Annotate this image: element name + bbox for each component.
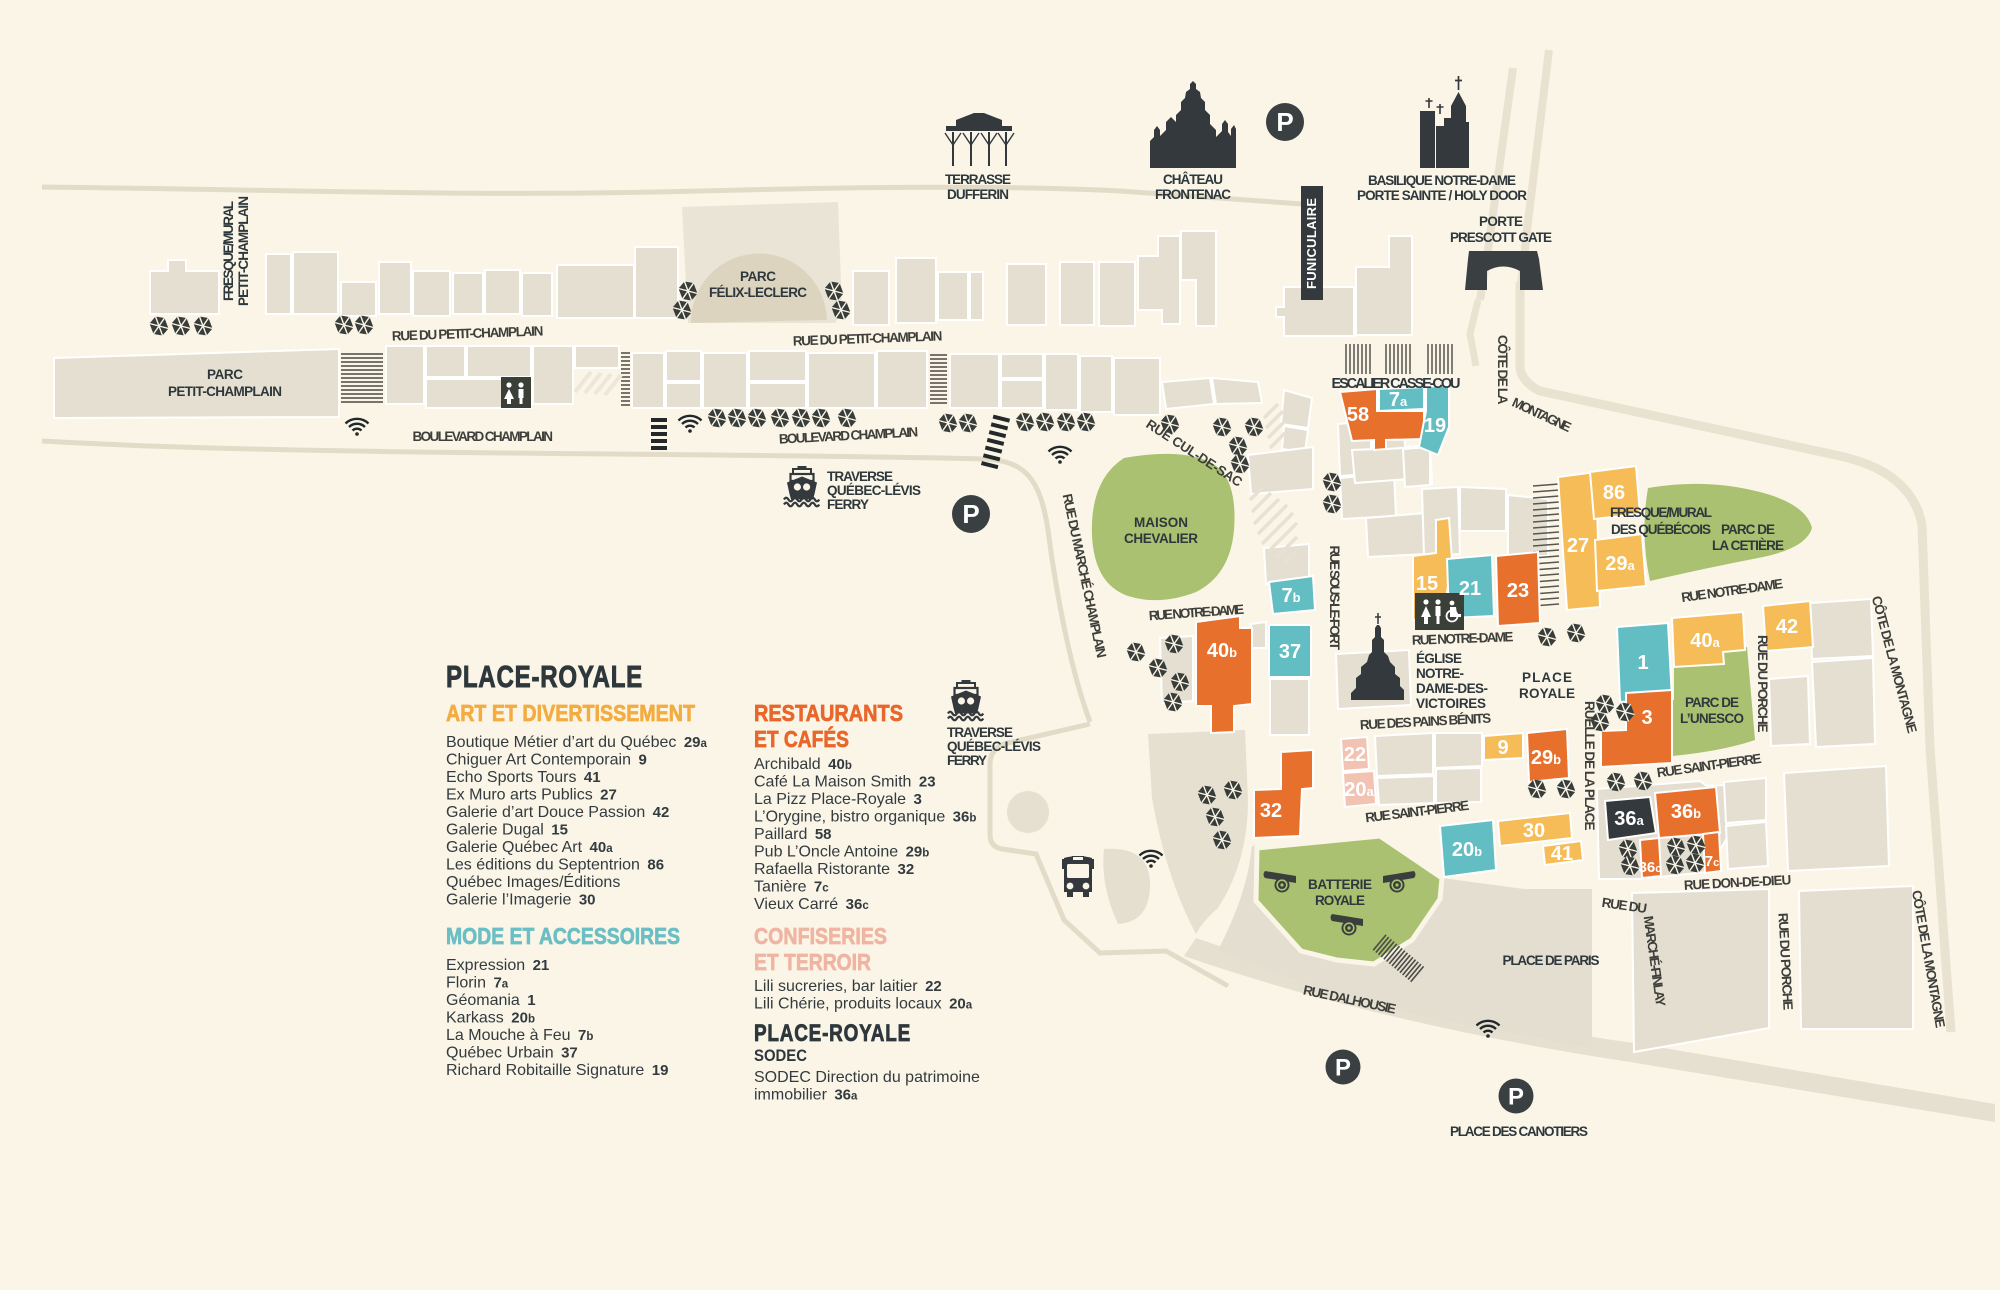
svg-text:Géomania 1: Géomania 1 [446,992,536,1009]
svg-text:PETIT-CHAMPLAIN: PETIT-CHAMPLAIN [236,196,251,306]
svg-text:ET CAFÉS: ET CAFÉS [754,725,849,752]
svg-text:Archibald 40b: Archibald 40b [754,756,852,773]
svg-text:PLACE DES CANOTIERS: PLACE DES CANOTIERS [1450,1124,1588,1139]
svg-text:Vieux Carré 36c: Vieux Carré 36c [754,896,869,913]
svg-text:Ex Muro arts Publics 27: Ex Muro arts Publics 27 [446,787,617,804]
svg-text:PARC DE: PARC DE [1685,695,1739,710]
svg-text:ET TERROIR: ET TERROIR [754,949,871,975]
svg-text:Café La Maison Smith 23: Café La Maison Smith 23 [754,774,936,791]
svg-text:TRAVERSE: TRAVERSE [947,725,1013,740]
svg-text:SODEC Direction du patrimoine: SODEC Direction du patrimoine [754,1069,980,1086]
svg-text:LA CETIÈRE: LA CETIÈRE [1712,538,1784,553]
svg-text:ART ET DIVERTISSEMENT: ART ET DIVERTISSEMENT [446,700,695,726]
svg-text:Les éditions du Septentrion 86: Les éditions du Septentrion 86 [446,857,664,874]
svg-text:21: 21 [1459,578,1481,600]
svg-text:58: 58 [1347,404,1369,426]
svg-text:L’Orygine, bistro organique 36: L’Orygine, bistro organique 36b [754,809,976,826]
svg-text:ÉGLISE: ÉGLISE [1416,651,1462,666]
svg-text:Galerie d’art Douce Passion 42: Galerie d’art Douce Passion 42 [446,804,669,821]
svg-text:3: 3 [1641,707,1652,729]
svg-text:Chiguer Art Contemporain 9: Chiguer Art Contemporain 9 [446,752,647,769]
svg-text:41: 41 [1551,843,1573,865]
svg-text:Galerie l’Imagerie 30: Galerie l’Imagerie 30 [446,892,596,909]
svg-text:PORTE: PORTE [1479,214,1523,229]
svg-text:PLACE-ROYALE: PLACE-ROYALE [446,659,643,694]
svg-text:DES QUÉBÉCOIS: DES QUÉBÉCOIS [1611,522,1711,537]
svg-text:FRONTENAC: FRONTENAC [1155,187,1231,202]
svg-text:Expression 21: Expression 21 [446,957,549,974]
svg-text:SODEC: SODEC [754,1046,807,1065]
svg-text:QUÉBEC-LÉVIS: QUÉBEC-LÉVIS [827,483,921,498]
svg-text:37: 37 [1279,641,1301,663]
svg-text:VICTOIRES: VICTOIRES [1416,696,1486,711]
svg-text:CÔTE DE LA: CÔTE DE LA [1495,335,1510,405]
svg-text:Florin 7a: Florin 7a [446,975,509,992]
svg-text:DUFFERIN: DUFFERIN [947,187,1009,202]
svg-text:Lili Chérie, produits locaux 2: Lili Chérie, produits locaux 20a [754,996,973,1013]
svg-text:TRAVERSE: TRAVERSE [827,469,893,484]
svg-text:23: 23 [1507,580,1529,602]
svg-text:Lili sucreries, bar laitier 22: Lili sucreries, bar laitier 22 [754,978,942,995]
svg-text:PLACE DE PARIS: PLACE DE PARIS [1503,953,1600,968]
svg-text:RUE DU PORCHE: RUE DU PORCHE [1755,635,1770,733]
svg-text:Québec Images/Éditions: Québec Images/Éditions [446,872,620,891]
svg-text:86: 86 [1603,482,1625,504]
svg-text:CHEVALIER: CHEVALIER [1124,531,1198,546]
svg-text:15: 15 [1416,573,1438,595]
svg-text:L’UNESCO: L’UNESCO [1680,711,1744,726]
svg-text:FERRY: FERRY [947,753,987,768]
svg-text:Karkass 20b: Karkass 20b [446,1010,535,1027]
svg-text:32: 32 [1260,800,1282,822]
svg-text:PRESCOTT GATE: PRESCOTT GATE [1450,230,1552,245]
svg-text:BOULEVARD CHAMPLAIN: BOULEVARD CHAMPLAIN [413,429,554,444]
svg-text:La Pizz Place-Royale 3: La Pizz Place-Royale 3 [754,791,922,808]
svg-text:19: 19 [1424,415,1446,437]
svg-text:PARC DE: PARC DE [1721,522,1775,537]
svg-text:PARC: PARC [207,367,243,382]
svg-text:FRESQUE/MURAL: FRESQUE/MURAL [1610,505,1712,520]
svg-text:BASILIQUE NOTRE-DAME: BASILIQUE NOTRE-DAME [1368,173,1516,188]
svg-text:CONFISERIES: CONFISERIES [754,923,887,949]
svg-text:FRESQUE/MURAL: FRESQUE/MURAL [221,201,236,301]
svg-text:ESCALIER CASSE-COU: ESCALIER CASSE-COU [1332,376,1461,392]
svg-text:PLACE-ROYALE: PLACE-ROYALE [754,1020,911,1047]
svg-text:FERRY: FERRY [827,497,869,512]
svg-text:Boutique Métier d’art du Québe: Boutique Métier d’art du Québec 29a [446,734,708,751]
svg-text:CHÂTEAU: CHÂTEAU [1163,172,1223,187]
svg-text:ROYALE: ROYALE [1519,686,1575,701]
svg-text:TERRASSE: TERRASSE [945,172,1011,187]
svg-text:30: 30 [1523,820,1545,842]
svg-text:Richard Robitaille Signature 1: Richard Robitaille Signature 19 [446,1062,668,1079]
svg-text:Québec Urbain 37: Québec Urbain 37 [446,1045,578,1062]
svg-text:27: 27 [1567,535,1589,557]
svg-text:9: 9 [1497,737,1508,759]
svg-text:PARC: PARC [740,269,776,284]
svg-text:1: 1 [1637,652,1648,674]
svg-text:MAISON: MAISON [1134,515,1188,530]
svg-text:Paillard 58: Paillard 58 [754,826,832,843]
svg-text:42: 42 [1776,616,1798,638]
svg-text:DAME-DES-: DAME-DES- [1416,681,1488,696]
svg-text:RUELLE DE LA PLACE: RUELLE DE LA PLACE [1582,701,1597,831]
svg-text:RUE SOUS-LE-FORT: RUE SOUS-LE-FORT [1327,546,1342,651]
svg-text:PLACE: PLACE [1522,670,1572,685]
svg-text:PORTE SAINTE / HOLY DOOR: PORTE SAINTE / HOLY DOOR [1357,188,1527,203]
svg-text:La Mouche à Feu 7b: La Mouche à Feu 7b [446,1027,593,1044]
svg-text:immobilier 36a: immobilier 36a [754,1087,858,1104]
svg-text:ROYALE: ROYALE [1315,893,1365,908]
svg-text:FÉLIX-LECLERC: FÉLIX-LECLERC [709,285,807,300]
svg-text:QUÉBEC-LÉVIS: QUÉBEC-LÉVIS [947,739,1041,754]
svg-text:22: 22 [1344,744,1366,766]
svg-text:Echo Sports Tours 41: Echo Sports Tours 41 [446,769,601,786]
svg-text:NOTRE-: NOTRE- [1416,666,1464,681]
svg-text:BATTERIE: BATTERIE [1308,877,1372,892]
svg-text:Tanière 7c: Tanière 7c [754,879,829,896]
svg-text:PETIT-CHAMPLAIN: PETIT-CHAMPLAIN [168,384,282,399]
svg-text:MODE ET ACCESSOIRES: MODE ET ACCESSOIRES [446,923,680,949]
svg-text:Rafaella Ristorante 32: Rafaella Ristorante 32 [754,861,914,878]
svg-text:FUNICULAIRE: FUNICULAIRE [1304,197,1319,289]
svg-text:RESTAURANTS: RESTAURANTS [754,700,903,726]
